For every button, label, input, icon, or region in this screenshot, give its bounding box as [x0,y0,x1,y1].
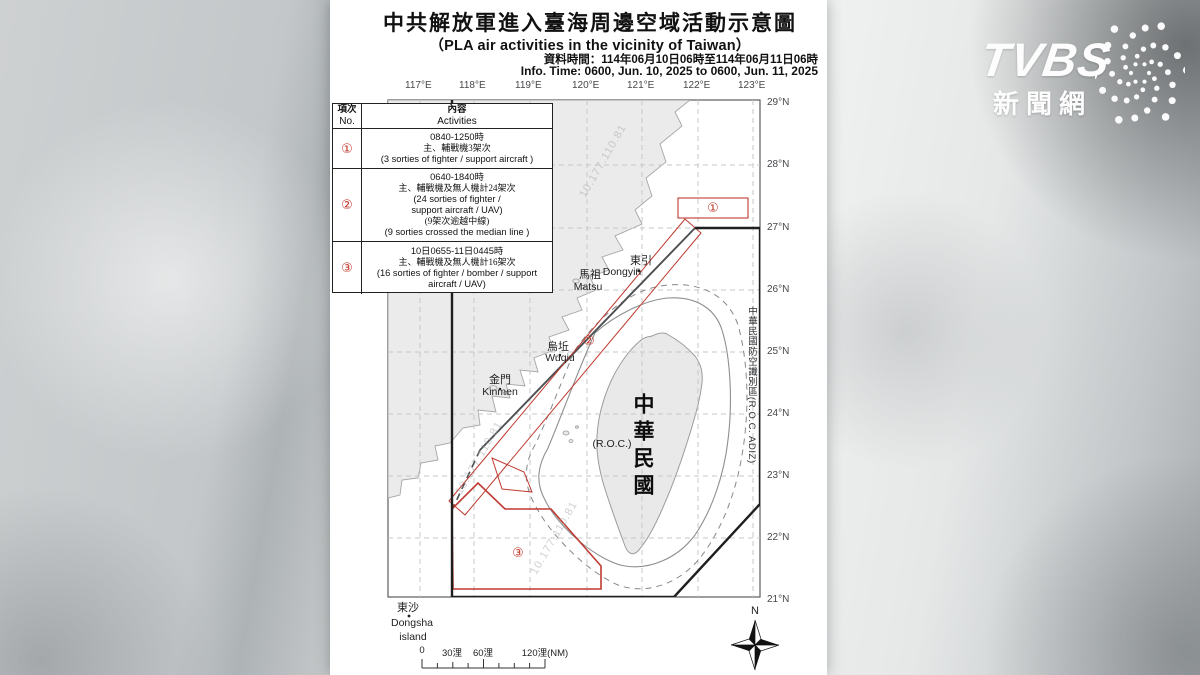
scale-label-60: 60浬 [468,645,498,659]
zone-3-label: ③ [506,546,530,559]
header-no-en: No. [339,116,355,128]
row-2-number: ② [341,197,353,212]
row-3-detail-en2: aircraft / UAV) [428,279,486,290]
tvbs-logo[interactable]: TVBS 新聞網 [975,18,1185,128]
row-1-time: 0840-1250時 [430,132,484,143]
row-2-median-zh: (9架次逾越中線) [425,216,490,227]
scale-label-120: 120浬(NM) [515,645,575,659]
dongsha-label-zh: 東沙 [388,599,428,615]
row-3-detail-en: (16 sorties of fighter / bomber / suppor… [377,268,537,279]
table-row-2-no: ② [333,169,362,242]
row-1-detail-zh: 主、輔戰機3架次 [423,143,491,154]
lon-label: 121°E [627,80,654,91]
row-2-median-en: (9 sorties crossed the median line ) [385,227,530,238]
lon-label: 123°E [738,80,765,91]
wuqiu-label-en: Wuqiu [530,352,590,364]
header-act-en: Activities [437,116,476,128]
lat-label: 25°N [767,346,789,357]
compass-rose [731,620,779,670]
scale-label-30: 30浬 [437,645,467,659]
compass-north-label: N [745,605,765,617]
lat-label: 23°N [767,470,789,481]
news-image: 中共解放軍進入臺海周邊空域活動示意圖 （PLA air activities i… [0,0,1200,675]
matsu-label-en: Matsu [558,281,618,293]
row-3-detail-zh: 主、輔戰機及無人機計16架次 [398,257,515,268]
tvbs-site-text: 新聞網 [993,84,1092,121]
row-1-number: ① [341,141,353,156]
lat-label: 21°N [767,594,789,605]
zone-2-label: ② [577,334,601,347]
table-header-no: 項次 No. [333,104,362,129]
row-1-detail-en: (3 sorties of fighter / support aircraft… [381,154,533,165]
lat-label: 22°N [767,532,789,543]
activities-table: 項次 No. 內容 Activities ① 0840-1250時 主、輔戰機3… [332,103,553,293]
kinmen-label-zh: 金門 [480,371,520,387]
lon-label: 118°E [459,80,486,91]
roc-label-en: (R.O.C.) [582,438,642,450]
scale-label-0: 0 [412,645,432,656]
lat-label: 29°N [767,97,789,108]
lat-label: 24°N [767,408,789,419]
row-2-detail-en2: support aircraft / UAV) [411,205,502,216]
kinmen-label-en: Kinmen [470,386,530,398]
table-row-2-activities: 0640-1840時 主、輔戰機及無人機計24架次 (24 sorties of… [362,169,552,242]
lon-label: 117°E [405,80,432,91]
lon-label: 120°E [572,80,599,91]
tvbs-brand-text: TVBS [977,32,1114,87]
row-3-time: 10日0655-11日0445時 [411,246,503,257]
lat-label: 28°N [767,159,789,170]
lon-label: 122°E [683,80,710,91]
scale-bar [422,659,545,668]
header-no-zh: 項次 [337,105,356,116]
lat-label: 27°N [767,222,789,233]
tvbs-dot-spiral-icon [1095,18,1185,128]
table-row-3-activities: 10日0655-11日0445時 主、輔戰機及無人機計16架次 (16 sort… [362,242,552,294]
dongsha-label-en2: island [383,631,443,643]
map-panel: 中共解放軍進入臺海周邊空域活動示意圖 （PLA air activities i… [330,0,827,675]
row-3-number: ③ [341,260,353,275]
header-act-zh: 內容 [447,105,466,116]
lon-label: 119°E [515,80,542,91]
zone-1-label: ① [701,201,725,214]
table-row-3-no: ③ [333,242,362,294]
adiz-boundary-label: 中華民國防空識別區(R.O.C. ADIZ) [744,306,758,464]
table-row-1-no: ① [333,129,362,169]
table-row-1-activities: 0840-1250時 主、輔戰機3架次 (3 sorties of fighte… [362,129,552,169]
matsu-label-zh: 馬祖 [570,266,610,282]
row-2-detail-zh: 主、輔戰機及無人機計24架次 [398,183,515,194]
dongsha-label-en1: Dongsha [382,617,442,629]
lat-label: 26°N [767,284,789,295]
table-header-activities: 內容 Activities [362,104,552,129]
row-2-detail-en: (24 sorties of fighter / [413,194,500,205]
row-2-time: 0640-1840時 [430,172,484,183]
